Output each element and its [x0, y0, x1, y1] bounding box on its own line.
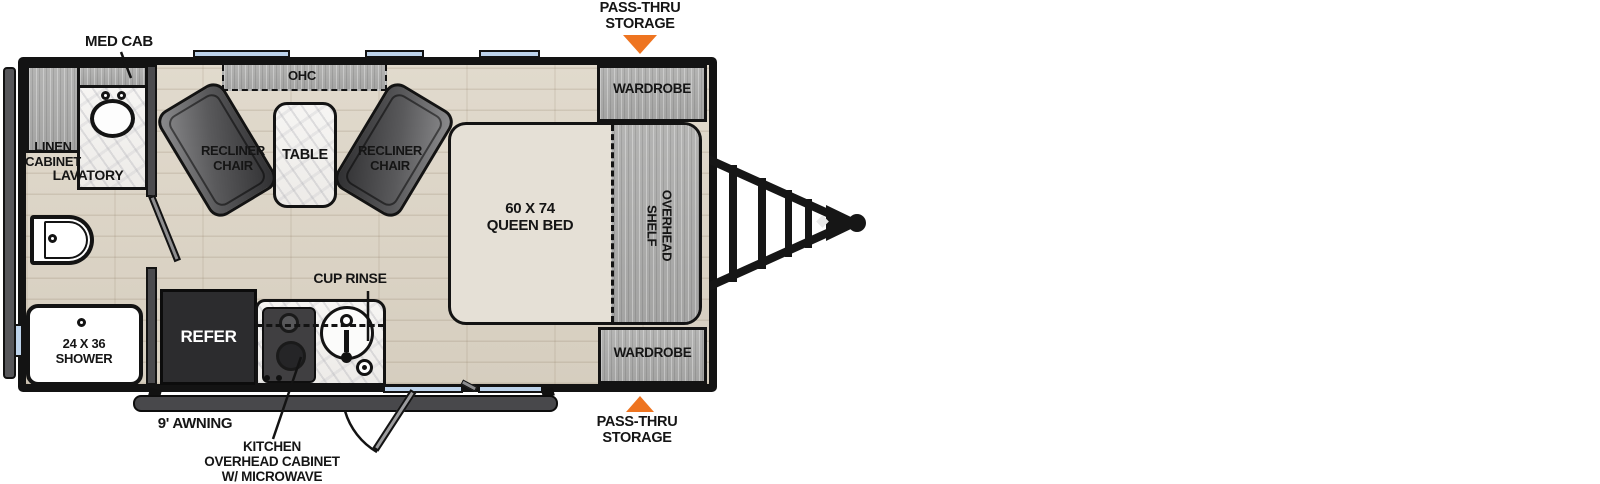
overlay-lines: [0, 0, 1600, 484]
label-wardrobe-top: WARDROBE: [597, 81, 707, 96]
label-cup-rinse: CUP RINSE: [310, 271, 390, 287]
label-shower: 24 X 36 SHOWER: [36, 337, 132, 366]
label-queen-bed: 60 X 74 QUEEN BED: [448, 201, 612, 235]
label-wardrobe-bottom: WARDROBE: [598, 345, 707, 360]
label-awning: 9' AWNING: [140, 416, 250, 433]
med-cab-leader: [121, 52, 131, 78]
label-recliner-right: RECLINER CHAIR: [335, 144, 445, 173]
label-lavatory: LAVATORY: [36, 168, 140, 184]
label-recliner-left: RECLINER CHAIR: [178, 144, 288, 173]
label-refer: REFER: [160, 327, 257, 346]
label-kitchen-overhead-cabinet: KITCHEN OVERHEAD CABINET W/ MICROWAVE: [192, 439, 352, 484]
label-pass-thru-bottom: PASS-THRU STORAGE: [567, 414, 707, 446]
label-med-cab: MED CAB: [84, 34, 154, 51]
kitchen-cabinet-leader: [273, 357, 301, 439]
rv-floorplan: MED CAB LINEN CABINET LAVATORY 24 X 36 S…: [0, 0, 1600, 484]
label-ohc: OHC: [262, 69, 342, 84]
label-overhead-shelf: OVERHEAD SHELF: [644, 167, 673, 285]
label-table: TABLE: [273, 147, 337, 163]
label-pass-thru-top: PASS-THRU STORAGE: [570, 0, 710, 32]
hitch-icon: [709, 155, 866, 291]
label-linen-cabinet: LINEN CABINET: [12, 140, 94, 169]
